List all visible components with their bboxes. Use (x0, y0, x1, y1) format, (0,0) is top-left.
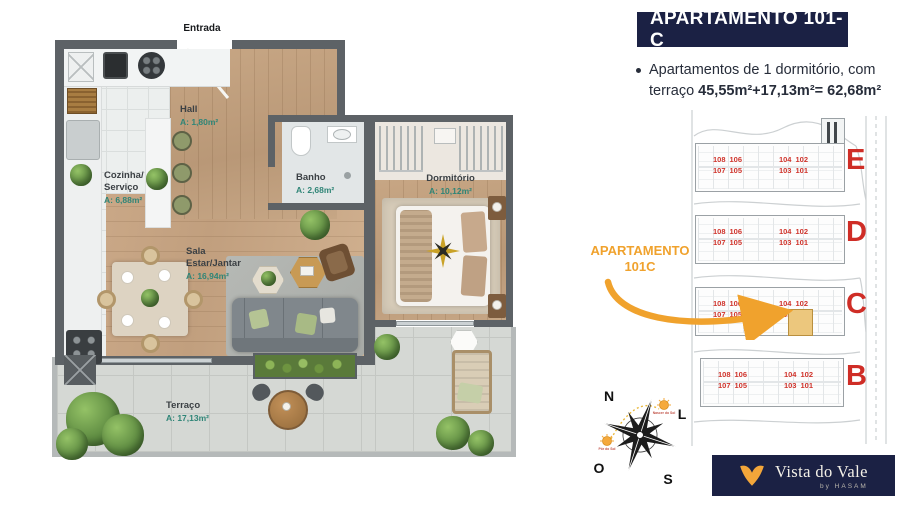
room-area: A: 17,13m² (166, 413, 209, 424)
kitchen-basket (67, 88, 97, 114)
lounge-pillow (457, 382, 484, 404)
unit-number: 108 (713, 155, 726, 164)
sofa-seam (244, 298, 245, 338)
sofa-pillow-green (248, 308, 269, 329)
callout-line1: APARTAMENTO (578, 243, 702, 259)
unit-number: 107 (718, 381, 731, 390)
sunrise-sun-icon: Nascer do Sol (653, 398, 676, 415)
unit-number: 106 (735, 370, 748, 379)
bed-compass-star-decor (426, 234, 460, 268)
compass-rose-icon: Nascer do Sol Pôr do Sol N L S O (585, 383, 693, 485)
unit-number: 105 (730, 166, 743, 175)
room-area: A: 16,94m² (186, 271, 241, 282)
building-letter-B: B (846, 362, 867, 391)
unit-number: 103 (779, 166, 792, 175)
terrace-plant (102, 414, 144, 456)
unit-number: 104 (779, 155, 792, 164)
page-title: APARTAMENTO 101-C (650, 8, 848, 52)
unit-number: 105 (735, 381, 748, 390)
apartment-description: Apartamentos de 1 dormitório, com terraç… (636, 60, 894, 101)
building-letter-C: C (846, 290, 867, 319)
svg-text:Nascer do Sol: Nascer do Sol (653, 411, 676, 415)
brand-byline: by HASAM (775, 483, 868, 490)
wall-bedroom-right (506, 115, 513, 327)
room-name: Sala Estar/Jantar (186, 246, 241, 269)
svg-text:Pôr do Sol: Pôr do Sol (599, 447, 616, 451)
room-label-kitchen: Cozinha/ Serviço A: 6,88m² (104, 158, 144, 217)
room-name: Banho (296, 172, 326, 183)
room-area: A: 10,12m² (398, 186, 503, 197)
terrace-plant (56, 428, 88, 460)
living-plant-icon (300, 210, 330, 240)
nightstand-lamp (492, 300, 502, 310)
description-text: Apartamentos de 1 dormitório, com terraç… (649, 60, 881, 101)
room-label-bath: Banho A: 2,68m² (296, 160, 334, 207)
dining-chair (97, 290, 116, 309)
unit-number: 104 (779, 227, 792, 236)
dining-chair (141, 246, 160, 265)
callout-arrow-icon (578, 268, 803, 340)
wall-bath-left (268, 115, 275, 167)
bedroom-window (396, 321, 474, 326)
room-label-living: Sala Estar/Jantar A: 16,94m² (186, 234, 241, 293)
lounge-chair (452, 350, 492, 414)
terrace-plant-corner (374, 334, 400, 360)
living-sliding-door (92, 358, 212, 363)
description-line1: Apartamentos de 1 dormitório, com (649, 62, 875, 78)
unit-number: 101 (795, 238, 808, 247)
bath-sink-bowl (333, 129, 351, 140)
sitemap-building-B: 108 106 104 102 107 105 103 101 (700, 358, 844, 407)
unit-numbers-row: 108 106 104 102 (718, 370, 813, 379)
compass-south-label: S (663, 471, 672, 485)
entrance-label: Entrada (162, 23, 242, 34)
bar-stool (172, 163, 192, 183)
lobby-bar (827, 122, 830, 144)
terrace-plant-right-small (468, 430, 494, 456)
flyer-page: Entrada Hall A: 1,80m² Cozinha/ Serviço … (0, 0, 900, 506)
unit-numbers-row: 107 105 103 101 (713, 238, 808, 247)
place-setting (158, 316, 171, 329)
building-letter-E: E (846, 146, 865, 175)
unit-number: 103 (779, 238, 792, 247)
unit-numbers-row: 107 105 103 101 (718, 381, 813, 390)
wall-bedroom-bottom-left (368, 320, 396, 327)
room-name: Terraço (166, 400, 200, 411)
kitchen-cabinet (68, 52, 94, 82)
room-name: Dormitório (426, 173, 475, 184)
sofa-seam (283, 298, 284, 338)
bullet-dot (636, 68, 641, 73)
unit-number: 108 (718, 370, 731, 379)
sofa-pillow-green (295, 313, 318, 336)
place-setting (121, 271, 134, 284)
unit-number: 102 (795, 155, 808, 164)
wall-bedroom-bottom-right (474, 320, 513, 327)
vista-do-vale-v-icon (738, 464, 766, 488)
wall-hall-right (337, 40, 345, 122)
room-area: A: 6,88m² (104, 195, 144, 206)
unit-number: 107 (713, 166, 726, 175)
unit-number: 107 (713, 238, 726, 247)
terrace-plant-right (436, 416, 470, 450)
apartment-title-banner: APARTAMENTO 101-C (637, 12, 848, 47)
refrigerator (66, 120, 100, 160)
room-area: A: 2,68m² (296, 185, 334, 196)
bistro-cup (282, 402, 291, 411)
terrace-utility-cabinet (64, 355, 96, 385)
room-label-bedroom: Dormitório A: 10,12m² (398, 161, 503, 208)
coffee-table-plant (261, 271, 276, 286)
room-area: A: 1,80m² (180, 117, 218, 128)
wall-bath-top (268, 115, 375, 122)
kitchen-sink (103, 52, 128, 79)
logo-text-block: Vista do Vale by HASAM (775, 462, 868, 490)
toilet (291, 126, 311, 156)
compass-east-label: L (678, 406, 687, 422)
unit-number: 106 (730, 227, 743, 236)
room-label-terrace: Terraço A: 17,13m² (166, 388, 209, 435)
unit-number: 108 (713, 227, 726, 236)
bar-stool (172, 195, 192, 215)
wall-bedroom-top (368, 115, 513, 122)
kitchen-cooktop (138, 52, 165, 79)
room-label-hall: Hall A: 1,80m² (180, 92, 218, 139)
unit-number: 103 (784, 381, 797, 390)
unit-number: 101 (800, 381, 813, 390)
sofa-pillow-white (319, 307, 335, 323)
unit-number: 102 (795, 227, 808, 236)
counter-plant-icon (146, 168, 168, 190)
unit-numbers-row: 108 106 104 102 (713, 227, 808, 236)
wall-top-kitchen (55, 40, 177, 49)
place-setting (121, 314, 134, 327)
place-setting (158, 269, 171, 282)
bed-pillow (461, 211, 488, 253)
unit-numbers-row: 107 105 103 101 (713, 166, 808, 175)
closet-dresser (434, 128, 456, 144)
shower-drain (344, 172, 351, 179)
compass-west-label: O (594, 460, 605, 476)
description-line2-prefix: terraço (649, 83, 698, 99)
unit-number: 105 (730, 238, 743, 247)
area-total-bold: 45,55m²+17,13m²= 62,68m² (698, 83, 881, 99)
unit-number: 102 (800, 370, 813, 379)
sitemap-building-E: 108 106 104 102 107 105 103 101 (695, 143, 845, 192)
sofa-backrest (232, 338, 358, 352)
table-centerpiece-plant (141, 289, 159, 307)
wall-mid-column (364, 115, 375, 365)
dining-chair (141, 334, 160, 353)
wall-top-hall (232, 40, 345, 49)
exterior-mask (345, 40, 368, 117)
building-letter-D: D (846, 218, 867, 247)
unit-number: 101 (795, 166, 808, 175)
wall-left-outer (55, 40, 64, 365)
sunset-sun-icon: Pôr do Sol (599, 434, 616, 451)
unit-number: 106 (730, 155, 743, 164)
bed-pillow (461, 255, 488, 297)
unit-number: 104 (784, 370, 797, 379)
lobby-bar (834, 122, 837, 144)
brand-logo: Vista do Vale by HASAM (712, 455, 895, 496)
planter-box (253, 353, 357, 379)
compass-north-label: N (604, 388, 614, 404)
room-name: Hall (180, 104, 197, 115)
unit-numbers-row: 108 106 104 102 (713, 155, 808, 164)
sitemap-building-D: 108 106 104 102 107 105 103 101 (695, 215, 845, 264)
brand-name: Vista do Vale (775, 462, 868, 482)
kitchen-plant-icon (70, 164, 92, 186)
room-name: Cozinha/ Serviço (104, 170, 144, 193)
coffee-table-books (300, 266, 314, 276)
